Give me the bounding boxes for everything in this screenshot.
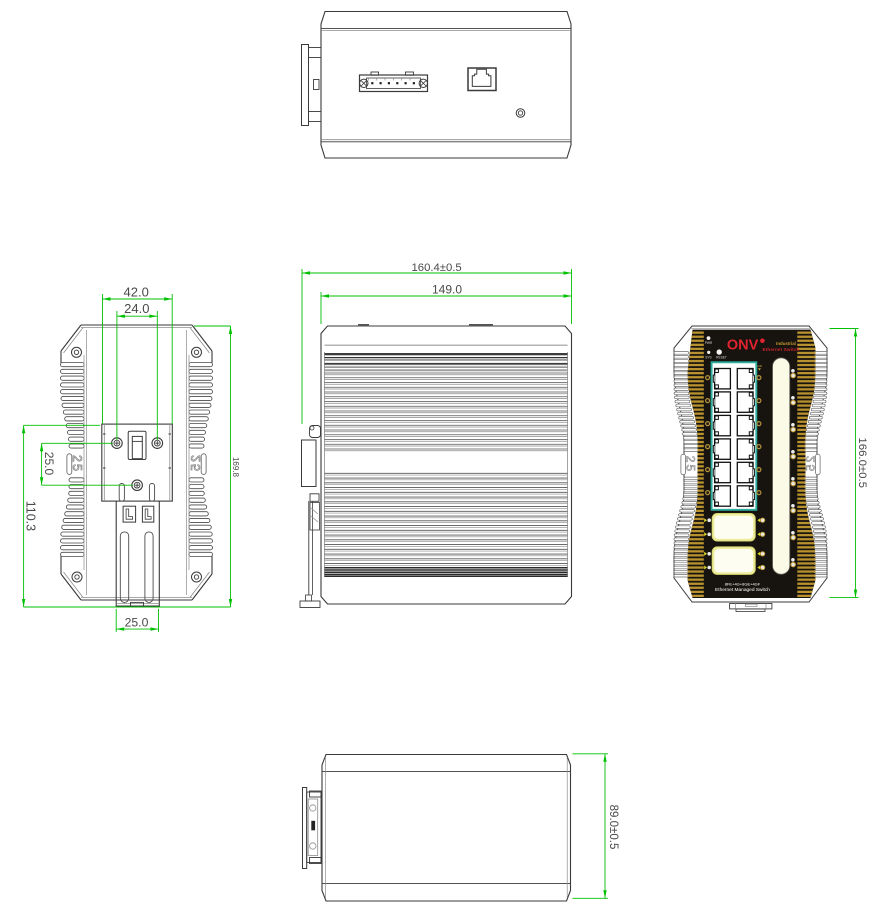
svg-text:25.0: 25.0 bbox=[42, 452, 56, 476]
svg-text:PWR: PWR bbox=[705, 341, 713, 345]
svg-text:ONV: ONV bbox=[727, 337, 759, 353]
svg-text:25: 25 bbox=[684, 456, 698, 473]
svg-text:Industrial: Industrial bbox=[776, 341, 796, 346]
svg-text:LNK: LNK bbox=[757, 364, 763, 368]
svg-text:25: 25 bbox=[803, 456, 817, 473]
svg-text:89.0±0.5: 89.0±0.5 bbox=[607, 805, 619, 850]
svg-text:25.0: 25.0 bbox=[125, 615, 149, 629]
svg-text:RESET: RESET bbox=[716, 356, 727, 360]
svg-text:Ethernet Switch: Ethernet Switch bbox=[762, 347, 799, 352]
svg-text:149.0: 149.0 bbox=[432, 282, 462, 296]
svg-text:8FE+4G+8GE+4GF: 8FE+4G+8GE+4GF bbox=[725, 582, 761, 587]
svg-text:Ethernet Managed Switch: Ethernet Managed Switch bbox=[715, 587, 770, 593]
svg-text:166.0±0.5: 166.0±0.5 bbox=[856, 437, 868, 488]
svg-text:110.3: 110.3 bbox=[24, 501, 38, 531]
svg-text:25: 25 bbox=[189, 455, 203, 473]
svg-text:SYS: SYS bbox=[705, 356, 711, 360]
svg-text:42.0: 42.0 bbox=[124, 285, 149, 300]
svg-text:169.8: 169.8 bbox=[231, 457, 240, 478]
svg-text:160.4±0.5: 160.4±0.5 bbox=[412, 262, 462, 274]
svg-text:24.0: 24.0 bbox=[124, 301, 149, 316]
svg-text:25: 25 bbox=[70, 455, 84, 473]
